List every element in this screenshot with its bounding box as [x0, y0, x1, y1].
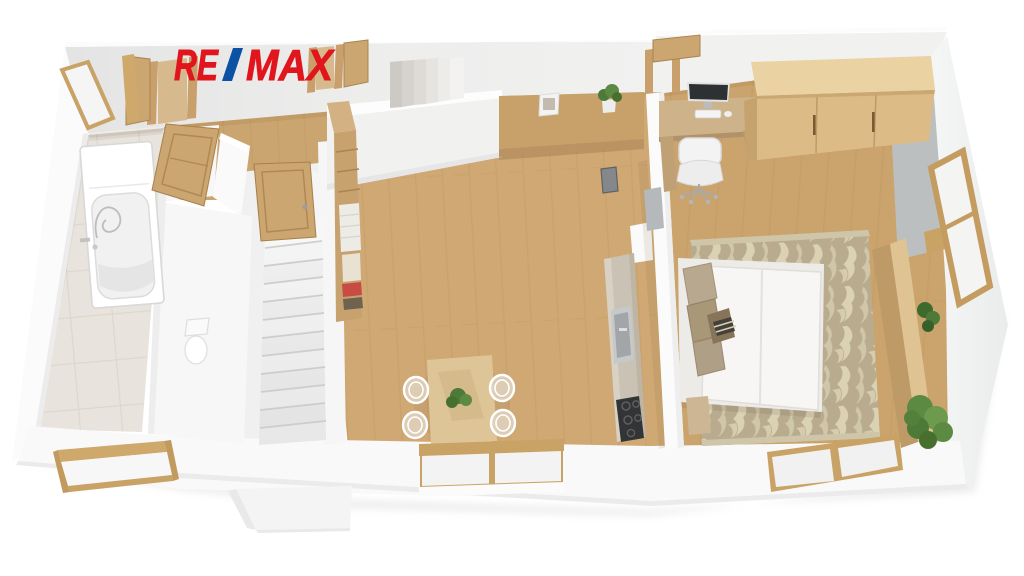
svg-text:RE: RE [174, 41, 219, 90]
svg-text:MAX: MAX [246, 41, 335, 90]
